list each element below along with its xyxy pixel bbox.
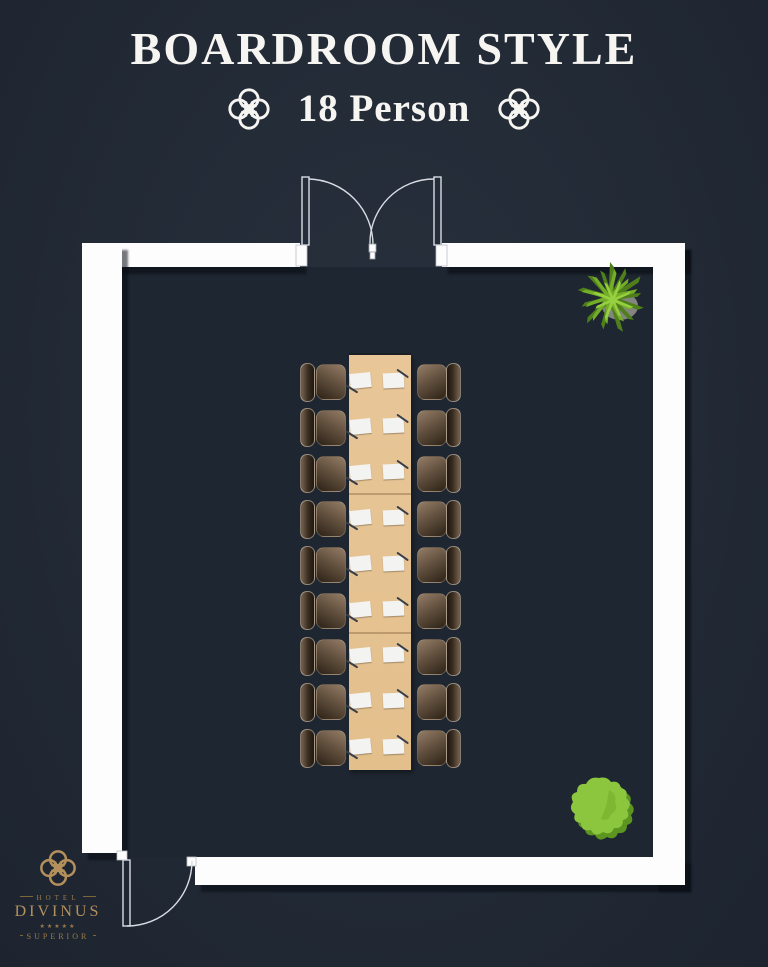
chair-backrest xyxy=(446,683,461,722)
notepad-icon xyxy=(383,738,405,754)
chair-backrest xyxy=(300,363,315,402)
double-door-icon xyxy=(296,177,447,266)
chair xyxy=(316,364,346,400)
chair xyxy=(316,547,346,583)
capacity-row: 18 Person xyxy=(0,85,768,133)
chair-backrest xyxy=(446,546,461,585)
rule-left xyxy=(20,935,23,936)
notepad-icon xyxy=(349,463,371,480)
chair-backrest xyxy=(300,591,315,630)
chair-backrest xyxy=(300,500,315,539)
rule-right xyxy=(83,896,96,897)
chair xyxy=(417,364,447,400)
notepad-icon xyxy=(383,692,405,708)
celtic-knot-icon xyxy=(226,85,272,133)
notepad-icon xyxy=(349,372,371,389)
notepad-icon xyxy=(383,463,405,479)
hotel-label-row: HOTEL xyxy=(20,891,96,902)
notepad-icon xyxy=(383,601,405,617)
floorplan xyxy=(0,0,768,967)
notepad-icon xyxy=(383,646,405,662)
chair xyxy=(316,639,346,675)
hotel-knot-icon xyxy=(38,845,78,891)
chair-backrest xyxy=(300,546,315,585)
chair-backrest xyxy=(300,729,315,768)
table-section-divider xyxy=(349,632,411,634)
page-title: BOARDROOM STYLE xyxy=(0,24,768,75)
notepad-icon xyxy=(383,372,405,388)
celtic-knot-icon xyxy=(496,85,542,133)
notepad-icon xyxy=(383,418,405,434)
table-section-divider xyxy=(349,493,411,495)
chair-backrest xyxy=(446,408,461,447)
notepad-icon xyxy=(349,418,371,435)
chair-backrest xyxy=(300,637,315,676)
header: BOARDROOM STYLE 18 Person xyxy=(0,0,768,133)
chair xyxy=(316,456,346,492)
chair-backrest xyxy=(446,500,461,539)
chair xyxy=(316,410,346,446)
chair-backrest xyxy=(300,408,315,447)
tier-label: SUPERIOR xyxy=(27,932,90,941)
chair-backrest xyxy=(446,454,461,493)
notepad-icon xyxy=(383,555,405,571)
chair-backrest xyxy=(300,683,315,722)
chair xyxy=(316,501,346,537)
chair-backrest xyxy=(300,454,315,493)
notepad-icon xyxy=(349,646,371,663)
star-rating: ★★★★★ xyxy=(40,923,77,930)
notepad-icon xyxy=(349,692,371,709)
chair xyxy=(417,593,447,629)
chair xyxy=(417,456,447,492)
notepad-icon xyxy=(349,601,371,618)
chair xyxy=(417,639,447,675)
hotel-label: HOTEL xyxy=(37,894,80,902)
chair xyxy=(316,730,346,766)
bushy-plant-icon xyxy=(565,772,641,848)
single-door-icon xyxy=(117,851,196,926)
chair-backrest xyxy=(446,637,461,676)
wall-left xyxy=(82,243,122,853)
chair xyxy=(417,547,447,583)
notepad-icon xyxy=(349,509,371,526)
notepad-icon xyxy=(349,555,371,572)
chair xyxy=(417,410,447,446)
chair xyxy=(417,501,447,537)
rule-left xyxy=(20,896,33,897)
tier-row: SUPERIOR xyxy=(20,930,96,941)
chair xyxy=(417,730,447,766)
spiky-plant-icon xyxy=(560,250,664,350)
wall-bottom xyxy=(195,857,685,885)
chair-backrest xyxy=(446,729,461,768)
chair xyxy=(316,593,346,629)
chair-backrest xyxy=(446,363,461,402)
capacity-label: 18 Person xyxy=(298,86,471,131)
hotel-logo: HOTEL DIVINUS ★★★★★ SUPERIOR xyxy=(16,845,100,941)
chair xyxy=(417,684,447,720)
rule-right xyxy=(93,935,96,936)
chair xyxy=(316,684,346,720)
notepad-icon xyxy=(349,738,371,755)
brand-name: DIVINUS xyxy=(15,903,102,921)
notepad-icon xyxy=(383,509,405,525)
chair-backrest xyxy=(446,591,461,630)
